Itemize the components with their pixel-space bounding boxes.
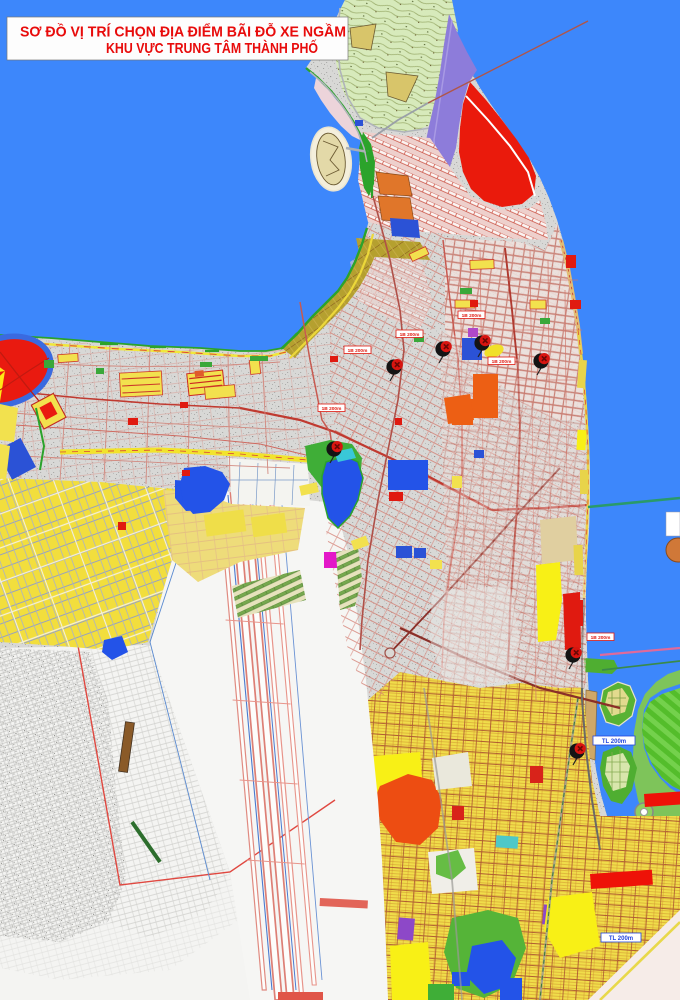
svg-text:1B 200m: 1B 200m [492,359,512,365]
svg-text:KHU VỰC TRUNG TÂM THÀNH PHỐ: KHU VỰC TRUNG TÂM THÀNH PHỐ [106,39,318,57]
svg-text:1B 200m: 1B 200m [462,313,482,319]
svg-text:1B 200m: 1B 200m [591,635,611,641]
svg-text:TL 200m: TL 200m [602,739,626,745]
svg-text:TL 200m: TL 200m [609,936,633,942]
svg-text:SƠ ĐỒ VỊ TRÍ CHỌN ĐỊA ĐIỂM BÃI: SƠ ĐỒ VỊ TRÍ CHỌN ĐỊA ĐIỂM BÃI ĐỖ XE NGẦ… [20,23,346,41]
svg-text:1B 200m: 1B 200m [322,406,342,412]
svg-text:1B 200m: 1B 200m [400,332,420,338]
svg-text:1B 200m: 1B 200m [348,348,368,354]
